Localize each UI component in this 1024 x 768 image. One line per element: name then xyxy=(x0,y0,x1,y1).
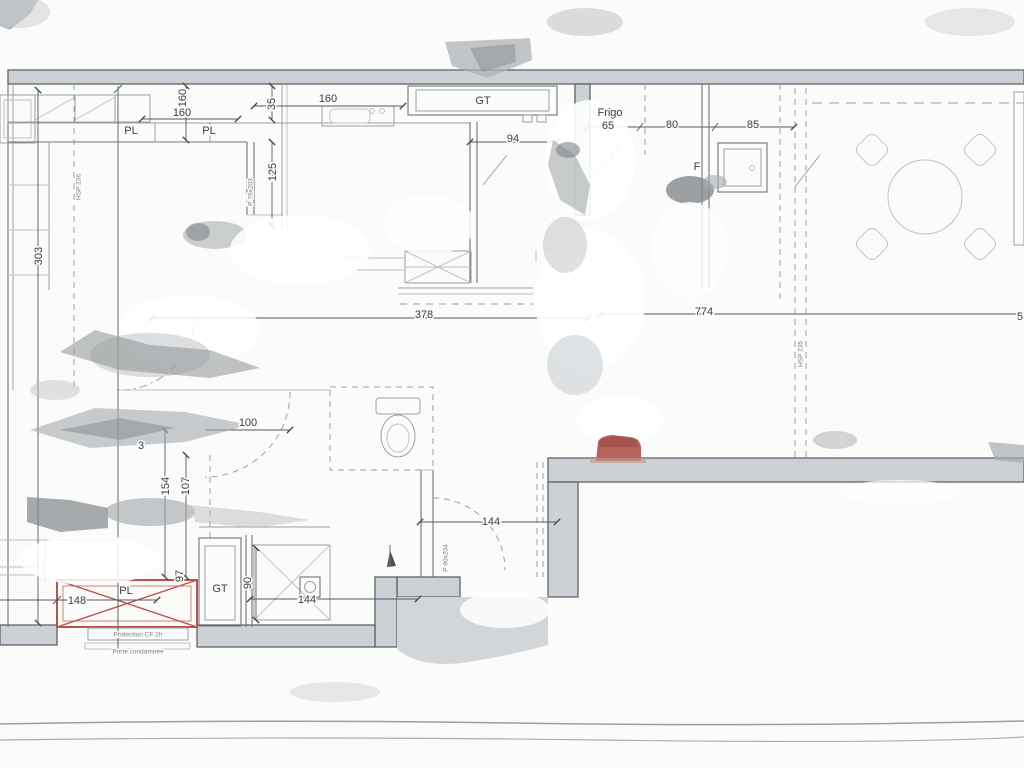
stray-digit: 3 xyxy=(138,440,144,452)
appliance-f-label: F xyxy=(694,161,701,173)
dining-table xyxy=(854,132,999,263)
dim-80: 80 xyxy=(666,119,678,131)
toilet xyxy=(376,398,420,457)
dim-774: 774 xyxy=(695,306,713,318)
dim-148: 148 xyxy=(68,595,86,607)
dim-160-vertical: 160 xyxy=(177,89,189,107)
dim-65: 65 xyxy=(602,120,614,132)
floor-plan-scan: 160 160 PL PL 35 125 160 GT 94 303 HSP 2… xyxy=(0,0,1024,768)
dim-303: 303 xyxy=(33,247,45,265)
chair xyxy=(962,132,999,169)
pl-left-label: PL xyxy=(124,125,137,137)
gt-bottom-label: GT xyxy=(212,583,228,595)
dim-378: 378 xyxy=(415,309,433,321)
chair xyxy=(854,132,891,169)
chair xyxy=(854,226,891,263)
door-label-p76: P 76x203 xyxy=(248,178,255,206)
pl-red-label: PL xyxy=(119,585,132,597)
scan-smudges xyxy=(0,0,1024,702)
dim-160-sink: 160 xyxy=(319,93,337,105)
gt-top-label: GT xyxy=(475,95,491,107)
dim-35: 35 xyxy=(266,98,278,110)
dim-97: 97 xyxy=(174,570,186,582)
dim-edge-partial: 5 xyxy=(1017,311,1023,323)
protection-note: Protection CF 2h xyxy=(114,632,163,639)
hsp-left-label: HSP 236 xyxy=(76,174,83,200)
dim-125: 125 xyxy=(267,163,279,181)
scan-edge-lines xyxy=(0,721,1024,741)
pl-right-label: PL xyxy=(202,125,215,137)
dim-85: 85 xyxy=(747,119,759,131)
dim-160-horizontal: 160 xyxy=(173,107,191,119)
radiator xyxy=(1014,92,1024,245)
dim-144-inner: 144 xyxy=(298,594,316,606)
dim-107: 107 xyxy=(180,477,192,495)
hsp-right-label: HSP 235 xyxy=(798,341,805,367)
floor-plan-drawing: 160 160 PL PL 35 125 160 GT 94 303 HSP 2… xyxy=(0,0,1024,768)
dim-154: 154 xyxy=(160,477,172,495)
duct-gt-bottom xyxy=(199,538,241,626)
dim-144-door: 144 xyxy=(482,516,500,528)
chair xyxy=(962,226,999,263)
dim-94: 94 xyxy=(507,133,519,145)
porte-note: Porte condamnée xyxy=(112,649,164,656)
dim-90: 90 xyxy=(242,577,254,589)
fridge-label: Frigo xyxy=(597,107,622,119)
dim-100: 100 xyxy=(239,417,257,429)
door-label-p90: P 90x204 xyxy=(443,544,450,572)
door-marker xyxy=(387,550,396,567)
